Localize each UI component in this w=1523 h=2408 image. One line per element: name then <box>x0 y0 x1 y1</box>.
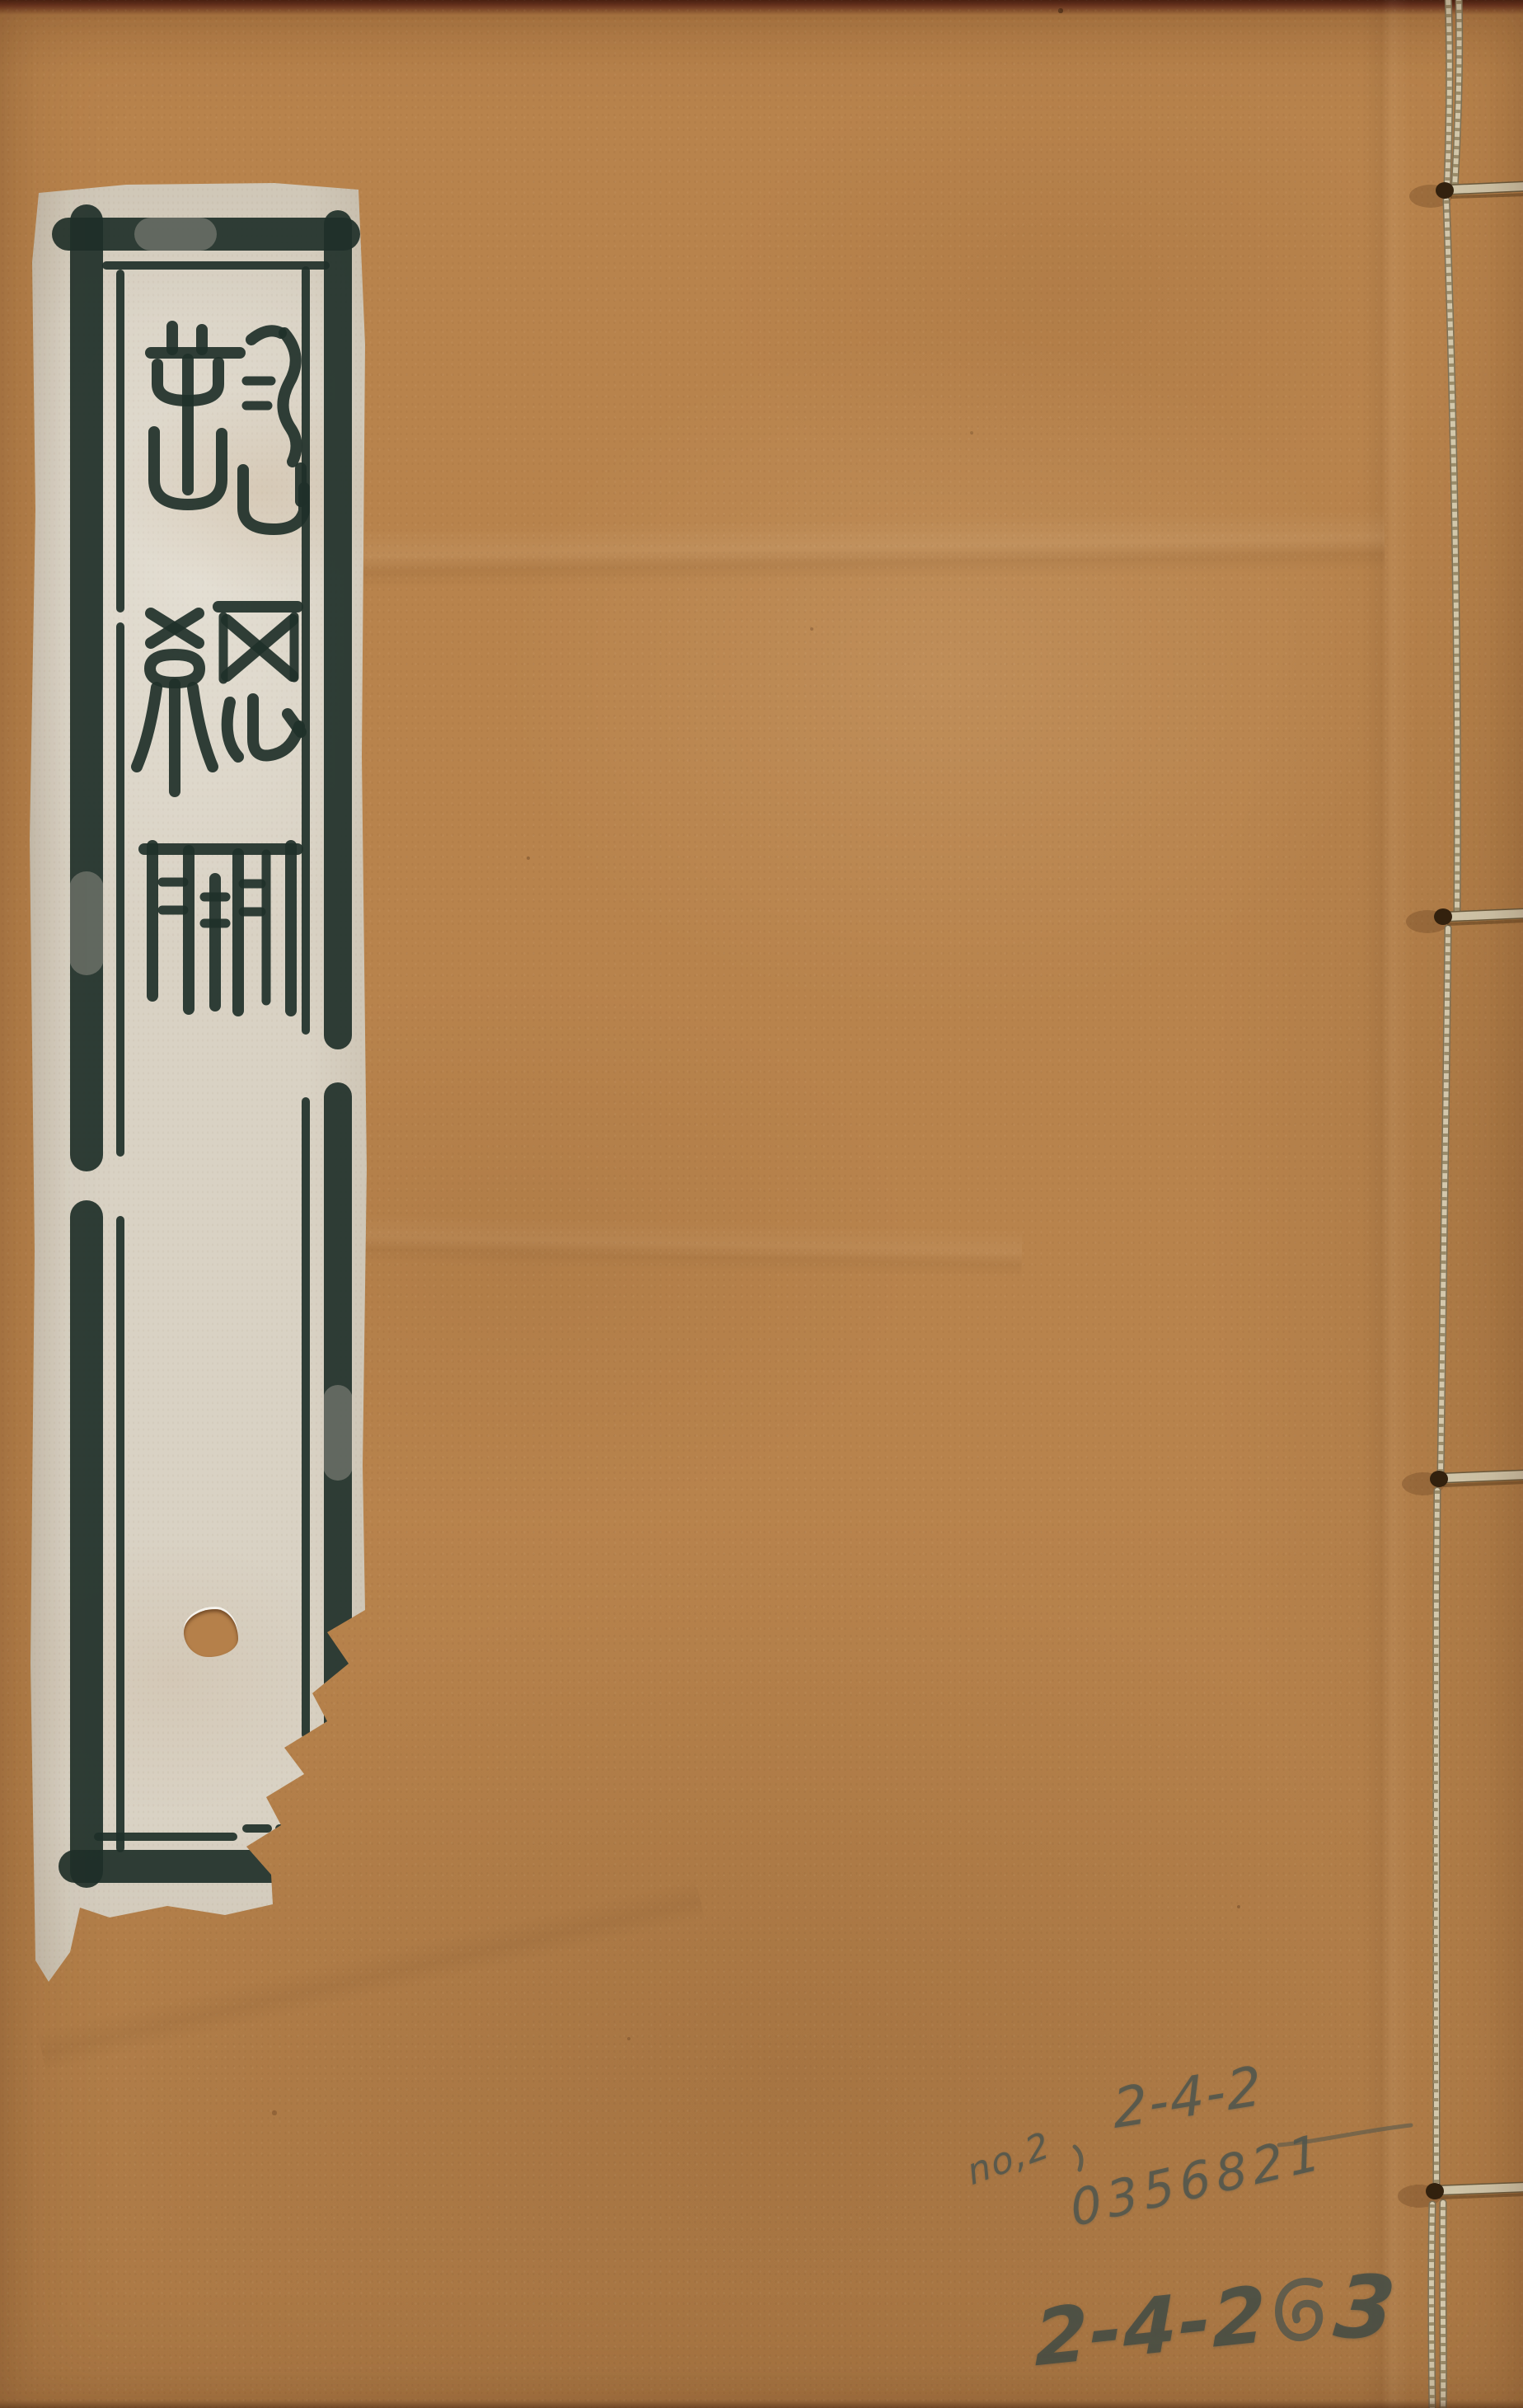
binding-thread <box>1319 0 1523 2408</box>
cover-crease-horizontal-1 <box>354 510 1385 589</box>
pencil-pause-mark <box>1068 2142 1090 2175</box>
pencil-number-0356821: 0356821 <box>1066 2123 1329 2238</box>
binding-thread-vertical <box>1432 0 1460 2408</box>
seal-character-zong <box>137 607 301 791</box>
book-cover: no,2 2-4-2 0356821 2-4-2 3 <box>0 0 1523 2408</box>
pencil-kana-no-squiggle <box>1268 2270 1335 2353</box>
title-label-artwork <box>27 180 372 2006</box>
pencil-line3-end: 3 <box>1330 2256 1401 2359</box>
cover-bottom-edge <box>0 2400 1523 2408</box>
seal-character-wen <box>144 846 298 1011</box>
pencil-line3-start: 2-4-2 <box>1033 2270 1268 2384</box>
cover-top-edge <box>0 0 1523 15</box>
cover-speckles <box>0 0 2 2</box>
title-label-paper <box>27 180 372 2006</box>
label-tear-hole <box>184 1609 238 1657</box>
pencil-prefix-no2: no,2 <box>963 2124 1056 2194</box>
pencil-number-2-4-2: 2-4-2 <box>1111 2054 1265 2141</box>
seal-character-shi <box>151 326 304 529</box>
